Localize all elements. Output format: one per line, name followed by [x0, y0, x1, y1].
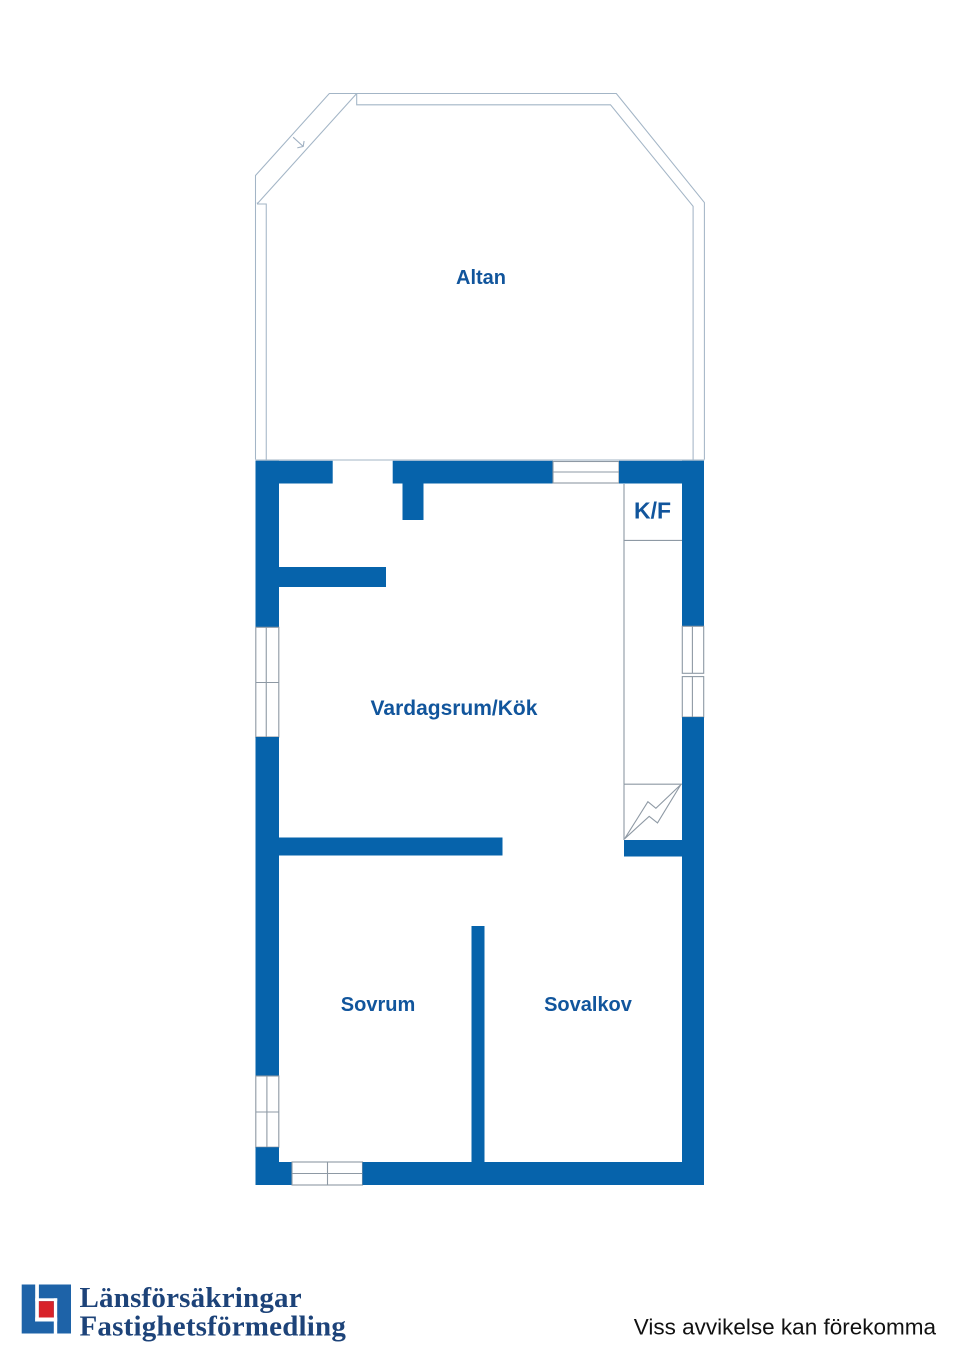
svg-text:Sovrum: Sovrum — [341, 994, 415, 1016]
svg-text:K/F: K/F — [634, 498, 671, 524]
svg-text:Vardagsrum/Kök: Vardagsrum/Kök — [371, 697, 538, 720]
svg-text:Altan: Altan — [456, 267, 506, 289]
svg-text:Viss avvikelse kan förekomma: Viss avvikelse kan förekomma — [634, 1315, 937, 1340]
svg-text:Sovalkov: Sovalkov — [544, 994, 633, 1016]
svg-text:Fastighetsförmedling: Fastighetsförmedling — [80, 1310, 347, 1342]
svg-text:Länsförsäkringar: Länsförsäkringar — [80, 1282, 302, 1314]
